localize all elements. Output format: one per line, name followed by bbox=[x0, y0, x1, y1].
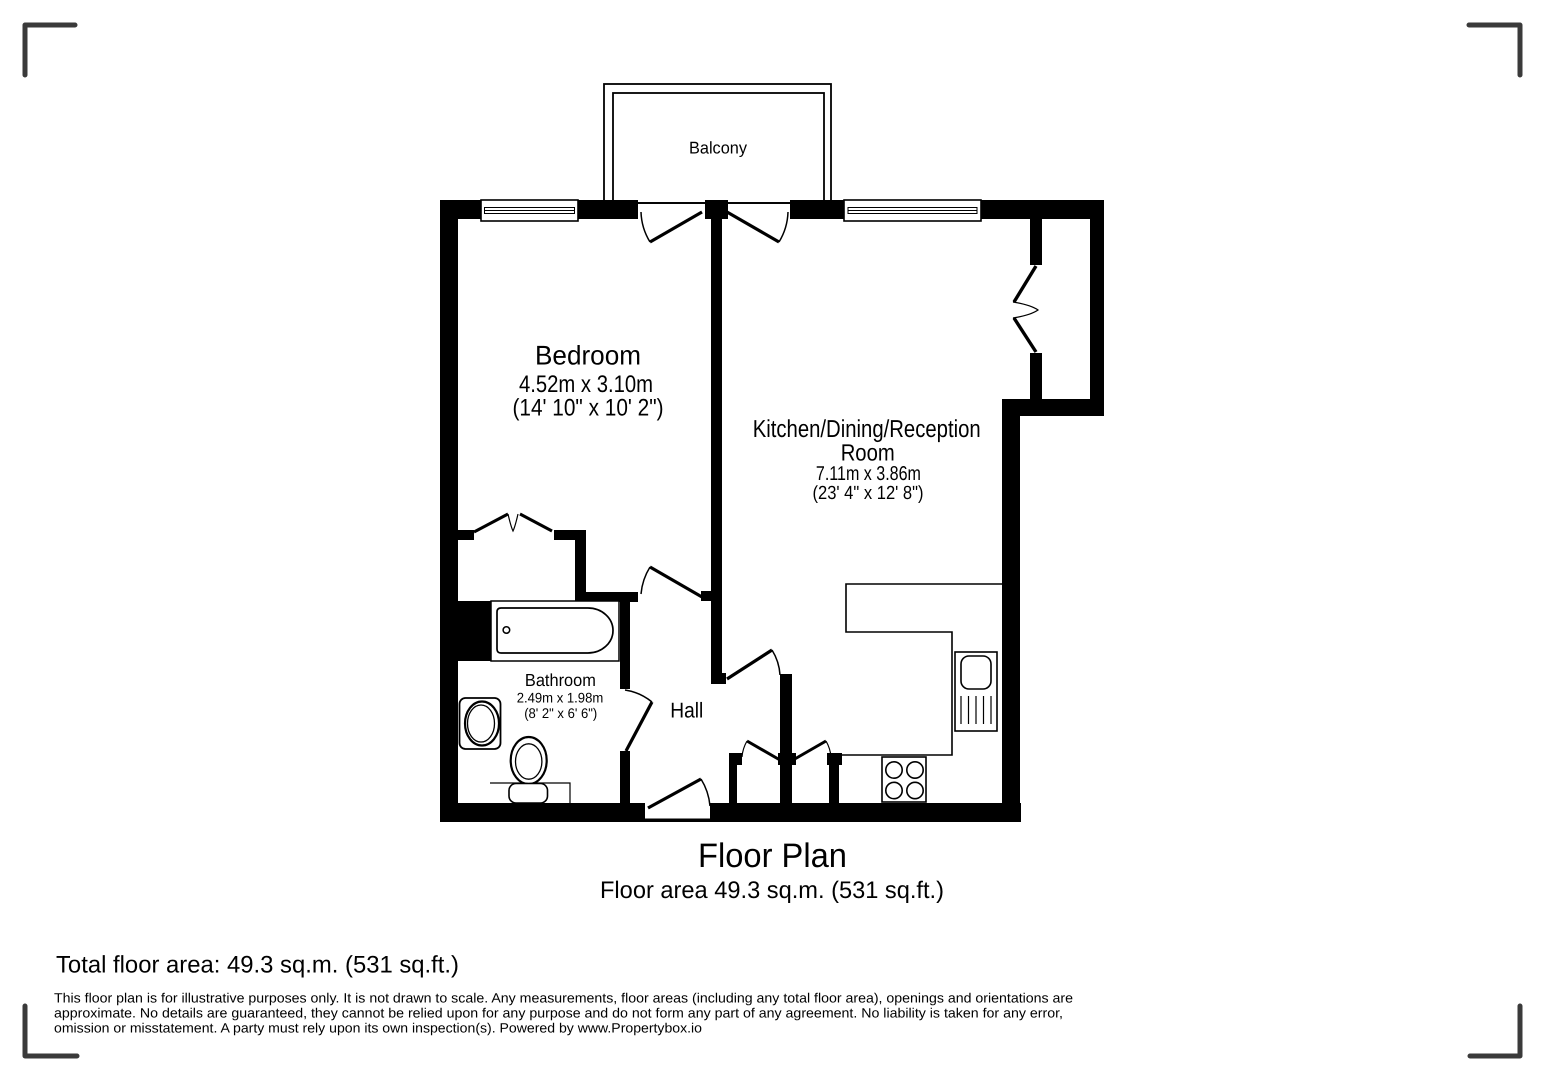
svg-text:Total floor area: 49.3 sq.m. (: Total floor area: 49.3 sq.m. (531 sq.ft.… bbox=[56, 952, 459, 979]
svg-text:omission or misstatement. A pa: omission or misstatement. A party must r… bbox=[54, 1021, 702, 1036]
svg-text:7.11m x 3.86m: 7.11m x 3.86m bbox=[816, 463, 921, 485]
svg-text:Balcony: Balcony bbox=[689, 138, 747, 157]
svg-text:Bedroom: Bedroom bbox=[535, 341, 641, 371]
svg-text:Floor area 49.3 sq.m. (531 sq.: Floor area 49.3 sq.m. (531 sq.ft.) bbox=[600, 877, 944, 904]
svg-text:This floor plan is for illustr: This floor plan is for illustrative purp… bbox=[54, 991, 1073, 1006]
svg-text:(23' 4" x 12' 8"): (23' 4" x 12' 8") bbox=[813, 483, 924, 504]
svg-text:(8' 2" x 6' 6"): (8' 2" x 6' 6") bbox=[524, 705, 597, 721]
svg-text:Room: Room bbox=[841, 440, 895, 466]
svg-text:2.49m x 1.98m: 2.49m x 1.98m bbox=[517, 689, 604, 705]
svg-text:Hall: Hall bbox=[670, 699, 703, 723]
svg-text:Bathroom: Bathroom bbox=[525, 670, 596, 690]
svg-text:approximate. No details are gu: approximate. No details are guaranteed, … bbox=[54, 1006, 1063, 1021]
svg-text:Floor Plan: Floor Plan bbox=[698, 837, 847, 875]
svg-text:(14' 10" x 10' 2"): (14' 10" x 10' 2") bbox=[513, 394, 664, 421]
